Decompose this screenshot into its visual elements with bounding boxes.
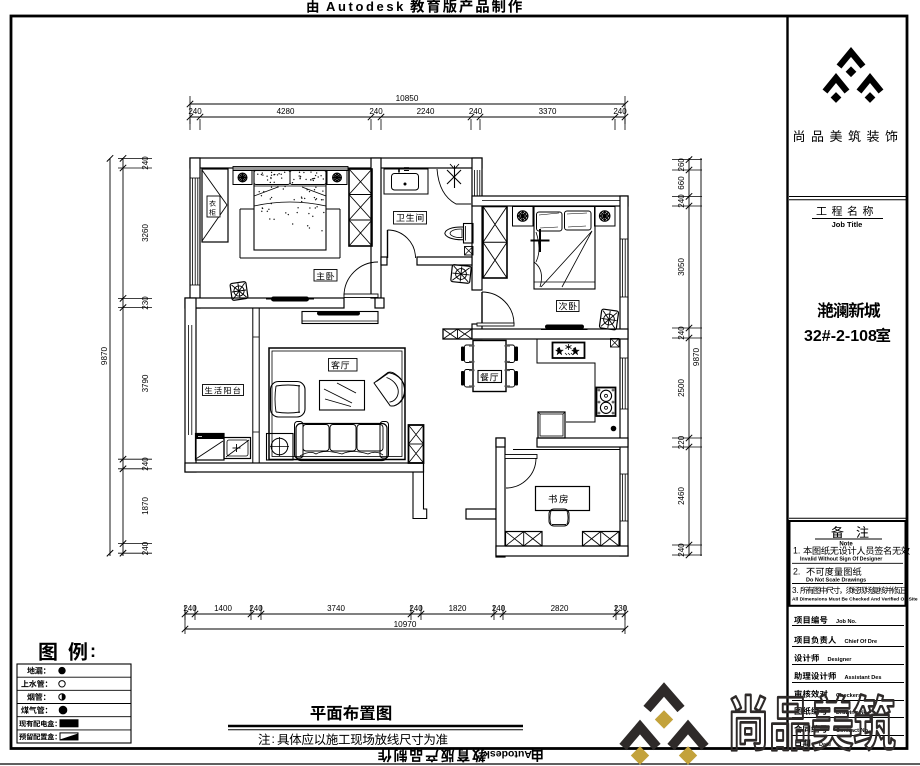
- svg-text:9870: 9870: [100, 346, 109, 365]
- svg-text:2500: 2500: [677, 379, 686, 397]
- svg-text:240: 240: [141, 457, 150, 471]
- svg-text:2460: 2460: [677, 487, 686, 505]
- svg-text:4280: 4280: [277, 107, 295, 116]
- svg-text:1870: 1870: [141, 497, 150, 515]
- svg-text:Do Not Scale Drawings: Do Not Scale Drawings: [806, 578, 866, 584]
- svg-text::: :: [90, 641, 96, 661]
- svg-text:3.: 3.: [792, 586, 799, 595]
- svg-text:All Dimensions Must Be Checked: All Dimensions Must Be Checked And Verif…: [792, 596, 918, 602]
- svg-text:Chief Of Dre: Chief Of Dre: [845, 639, 878, 645]
- svg-text:240: 240: [183, 604, 197, 613]
- svg-text:260: 260: [677, 158, 686, 172]
- svg-text:3370: 3370: [539, 107, 557, 116]
- svg-text:3260: 3260: [141, 224, 150, 242]
- svg-text:3050: 3050: [677, 258, 686, 276]
- svg-text::: :: [272, 732, 275, 746]
- svg-text:240: 240: [141, 156, 150, 170]
- svg-text:1400: 1400: [214, 604, 232, 613]
- svg-text:3740: 3740: [327, 604, 345, 613]
- svg-text:3790: 3790: [141, 374, 150, 392]
- svg-text:240: 240: [677, 326, 686, 340]
- svg-text:2820: 2820: [551, 604, 569, 613]
- svg-text:1820: 1820: [449, 604, 467, 613]
- svg-text:32#-2-108: 32#-2-108: [804, 328, 877, 345]
- svg-text:240: 240: [613, 107, 627, 116]
- svg-text:Job Title: Job Title: [832, 220, 863, 229]
- svg-text:230: 230: [141, 296, 150, 310]
- svg-text:240: 240: [677, 543, 686, 557]
- svg-text:240: 240: [369, 107, 383, 116]
- svg-text:240: 240: [409, 604, 423, 613]
- svg-text:Job No.: Job No.: [836, 619, 857, 625]
- svg-text:240: 240: [141, 541, 150, 555]
- svg-text:2240: 2240: [417, 107, 435, 116]
- svg-text:Note: Note: [839, 542, 853, 548]
- svg-text:10850: 10850: [396, 94, 419, 103]
- svg-text:Autodesk: Autodesk: [326, 0, 406, 14]
- svg-text:660: 660: [677, 176, 686, 190]
- svg-text:Invalid Without Sign Of Design: Invalid Without Sign Of Designer: [800, 557, 882, 563]
- svg-text:240: 240: [492, 604, 506, 613]
- svg-text:Designer: Designer: [828, 657, 853, 663]
- svg-text:1.: 1.: [793, 546, 800, 556]
- svg-text:220: 220: [677, 435, 686, 449]
- svg-text:2.: 2.: [793, 567, 800, 577]
- svg-text:230: 230: [614, 604, 628, 613]
- svg-text:Assistant Des: Assistant Des: [845, 675, 882, 681]
- svg-text:9870: 9870: [692, 347, 701, 366]
- svg-text:240: 240: [188, 107, 202, 116]
- svg-text:10970: 10970: [394, 620, 417, 629]
- svg-text:240: 240: [677, 194, 686, 208]
- svg-text:240: 240: [469, 107, 483, 116]
- svg-text:240: 240: [249, 604, 263, 613]
